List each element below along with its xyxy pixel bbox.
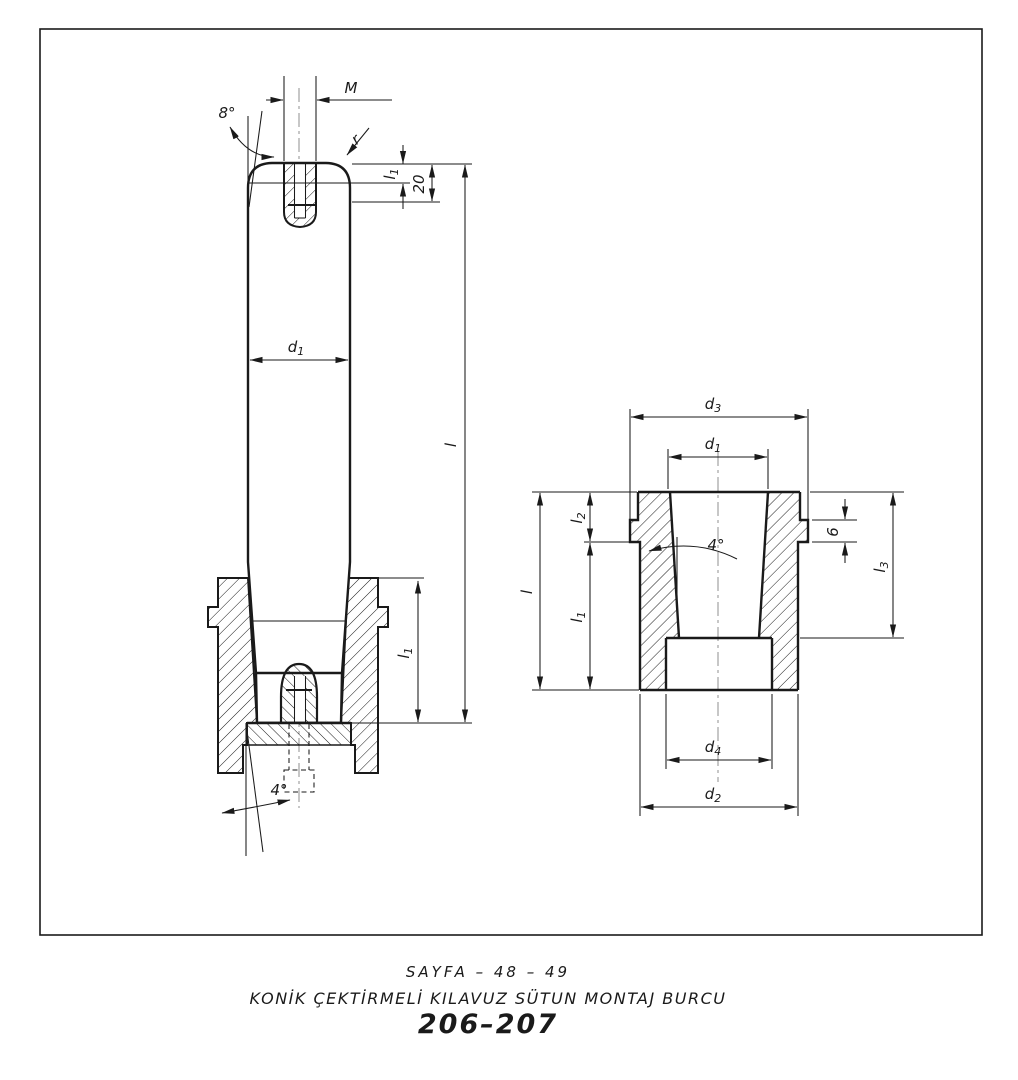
left-view: M 8° r l1 20 d1 l l1 4° — [208, 76, 472, 856]
dim-label-r: r — [348, 130, 365, 148]
dim-label-6: 6 — [824, 527, 842, 537]
dim-label-l3: l3 — [871, 561, 891, 572]
bushing-bottom-band — [247, 723, 351, 745]
dim-label-20: 20 — [410, 174, 428, 193]
drawing-frame — [40, 29, 982, 935]
dim-label-l-right: l — [518, 589, 536, 594]
angle8-arc — [230, 127, 274, 157]
dim-label-l-left: l — [442, 442, 460, 447]
right-view: d3 d1 l l2 l1 6 l3 4° — [518, 395, 904, 816]
dim-label-d1-right: d1 — [705, 435, 722, 455]
title-block: SAYFA – 48 – 49 KONİK ÇEKTİRMELİ KILAVUZ… — [250, 963, 727, 1040]
dim-label-d2: d2 — [705, 785, 722, 805]
dim-label-d4: d4 — [705, 738, 722, 758]
caption-code: 206–207 — [418, 1009, 558, 1040]
caption-page: SAYFA – 48 – 49 — [406, 963, 570, 981]
dim-label-angle4-left: 4° — [270, 781, 287, 799]
dim-label-l1-right: l1 — [568, 611, 588, 622]
drawing-page: M 8° r l1 20 d1 l l1 4° — [0, 0, 1018, 1080]
dim-label-angle4-right: 4° — [707, 536, 724, 554]
dim-label-l2: l2 — [568, 512, 588, 523]
technical-drawing: M 8° r l1 20 d1 l l1 4° — [0, 0, 1018, 1080]
dim-label-l1-bottom: l1 — [395, 647, 415, 658]
caption-title: KONİK ÇEKTİRMELİ KILAVUZ SÜTUN MONTAJ BU… — [250, 989, 727, 1008]
dim-label-angle8: 8° — [218, 104, 235, 122]
dim-label-m: M — [345, 79, 358, 97]
dim-label-d3: d3 — [705, 395, 722, 415]
dim-label-l1-top: l1 — [381, 168, 401, 179]
pin-outline — [248, 163, 350, 723]
